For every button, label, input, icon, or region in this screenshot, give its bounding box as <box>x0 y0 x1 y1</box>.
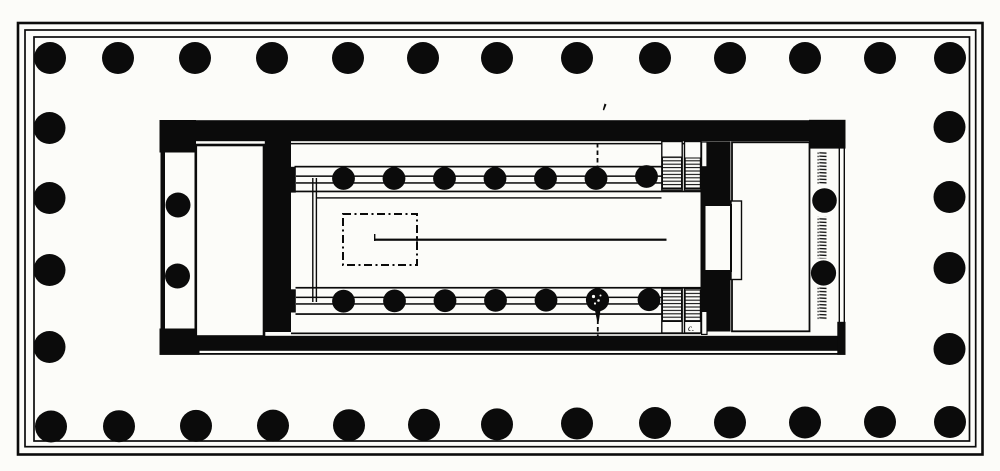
svg-text:c.: c. <box>688 323 694 333</box>
